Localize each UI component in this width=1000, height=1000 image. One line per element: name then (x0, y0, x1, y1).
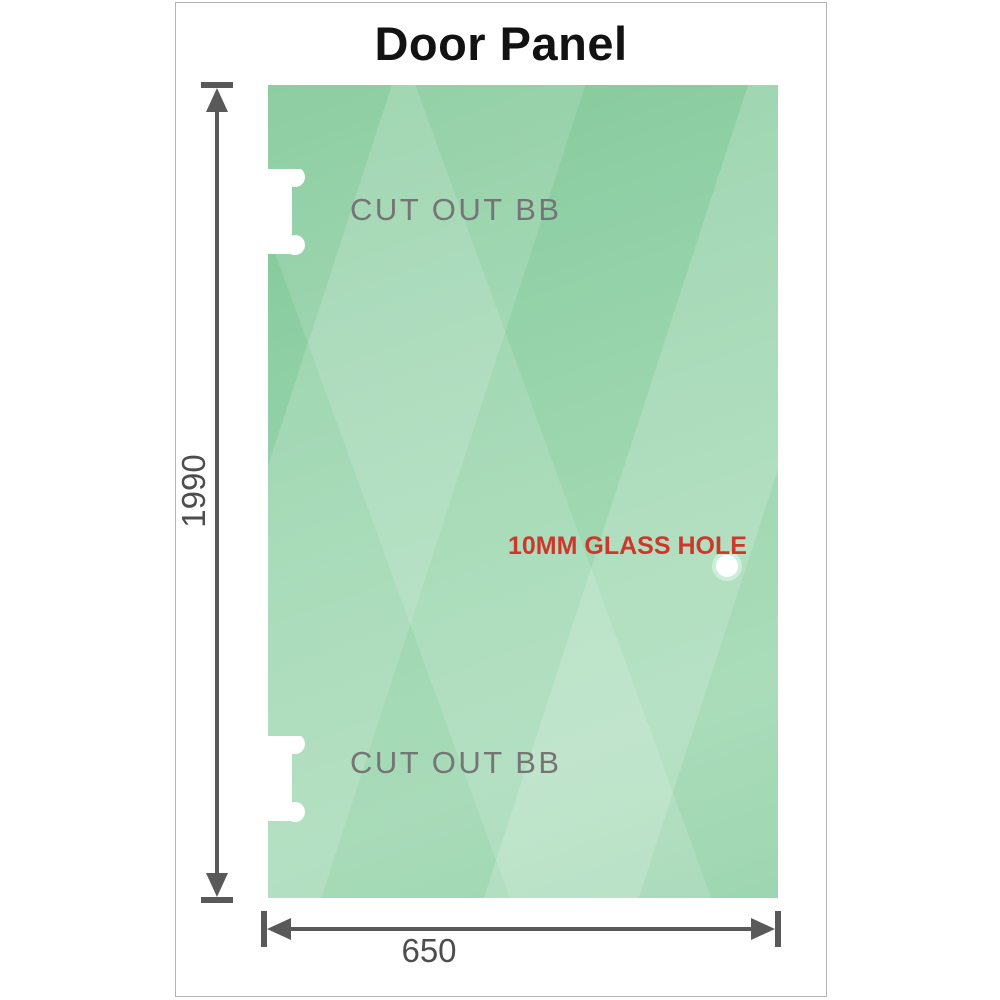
glass-panel: CUT OUT BB CUT OUT BB 10MM GLASS HOLE (268, 85, 778, 898)
arrowhead-right-icon (751, 918, 775, 940)
cutout-bb-bottom-label: CUT OUT BB (350, 745, 562, 781)
arrowhead-left-icon (267, 918, 291, 940)
door-panel-diagram: Door Panel 1990 CUT OUT BB CUT OUT BB 10… (0, 0, 1000, 1000)
height-dimension-label: 1990 (176, 451, 212, 531)
width-dimension-arrow (258, 908, 784, 950)
cutout-bb-top-icon (266, 169, 308, 255)
glass-hole-label: 10MM GLASS HOLE (508, 532, 718, 561)
cutout-bb-bottom-icon (266, 736, 308, 822)
width-dimension-label: 650 (389, 933, 469, 969)
arrowhead-up-icon (206, 88, 228, 112)
cutout-bb-top-label: CUT OUT BB (350, 192, 562, 228)
page-title: Door Panel (175, 16, 827, 71)
arrowhead-down-icon (206, 873, 228, 897)
